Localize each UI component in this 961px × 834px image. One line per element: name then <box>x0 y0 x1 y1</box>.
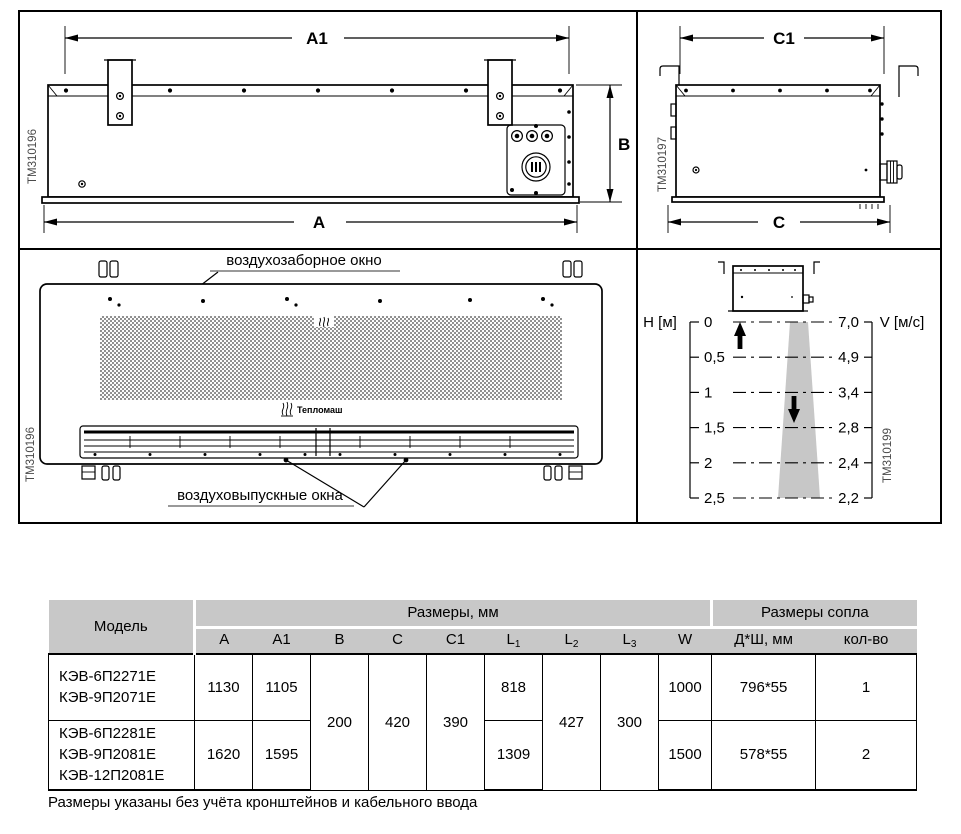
drawings-panel: A1 <box>18 10 942 524</box>
col-header-l1: L1 <box>485 627 543 654</box>
model-cell: КЭВ-6П2281Е КЭВ-9П2081Е КЭВ-12П2081Е <box>49 720 195 790</box>
model-name: КЭВ-9П2081Е <box>59 744 194 765</box>
dim-b-label: B <box>618 135 630 154</box>
table-row: КЭВ-6П2271Е КЭВ-9П2071Е 1130 1105 200 42… <box>49 654 917 720</box>
bottom-plate <box>672 197 884 202</box>
dim-a1-label: A1 <box>306 29 328 48</box>
footnote: Размеры указаны без учёта кронштейнов и … <box>48 794 477 811</box>
intake-mesh <box>100 316 562 400</box>
model-cell: КЭВ-6П2271Е КЭВ-9П2071Е <box>49 654 195 720</box>
dimensions-table: Модель Размеры, мм Размеры сопла A A1 B … <box>48 600 917 791</box>
h-tick-5: 2,5 <box>704 490 725 507</box>
cell-l1: 818 <box>485 654 543 720</box>
bottom-plate <box>42 197 579 203</box>
col-header-nozzle-count: кол-во <box>816 627 917 654</box>
h-tick-2: 1 <box>704 384 712 401</box>
cell-c-merged: 420 <box>369 654 427 790</box>
col-header-a1: A1 <box>253 627 311 654</box>
connector-icon <box>522 153 550 181</box>
cable-gland-icon <box>880 161 902 183</box>
col-header-a: A <box>195 627 253 654</box>
up-arrow-icon <box>734 322 746 349</box>
hanger-hooks-top-right <box>563 261 582 277</box>
cell-w: 1500 <box>659 720 712 790</box>
hanger-bottom-left <box>82 466 120 480</box>
h-tick-4: 2 <box>704 455 712 472</box>
cell-b-merged: 200 <box>311 654 369 790</box>
cell-nozzle-size: 578*55 <box>712 720 816 790</box>
group-header-nozzle: Размеры сопла <box>712 600 917 627</box>
cell-w: 1000 <box>659 654 712 720</box>
outlet-label: воздуховыпускные окна <box>177 487 343 504</box>
hanger-bottom-right <box>544 466 582 480</box>
cell-c1-merged: 390 <box>427 654 485 790</box>
cell-a1: 1595 <box>253 720 311 790</box>
model-name: КЭВ-9П2071Е <box>59 687 194 708</box>
cell-nozzle-size: 796*55 <box>712 654 816 720</box>
mounting-bracket-left <box>104 60 136 125</box>
airflow-chart: H [м] 0 0,5 1 1,5 2 2,5 V [м/с] 7,0 4,9 <box>638 250 940 522</box>
intake-label: воздухозаборное окно <box>226 252 381 269</box>
col-header-l2: L2 <box>543 627 601 654</box>
cell-l2-merged: 427 <box>543 654 601 790</box>
cell-a: 1130 <box>195 654 253 720</box>
side-view-cell: C1 <box>638 12 940 250</box>
dimension-b: B <box>576 85 630 202</box>
dimension-a: A <box>44 205 577 233</box>
v-tick-2: 3,4 <box>838 384 859 401</box>
dimension-c: C <box>668 205 890 233</box>
dim-c-label: C <box>773 213 785 232</box>
airflow-chart-cell: H [м] 0 0,5 1 1,5 2 2,5 V [м/с] 7,0 4,9 <box>638 250 940 522</box>
vent-mark-icon <box>314 316 334 327</box>
vent-ticks <box>860 204 878 209</box>
h-tick-3: 1,5 <box>704 420 725 437</box>
h-tick-1: 0,5 <box>704 349 725 366</box>
v-tick-1: 4,9 <box>838 349 859 366</box>
figure-id-front: TM310196 <box>25 427 37 482</box>
figure-id-side: TM310197 <box>657 137 669 192</box>
cell-a: 1620 <box>195 720 253 790</box>
cell-l3-merged: 300 <box>601 654 659 790</box>
model-name: КЭВ-6П2281Е <box>59 723 194 744</box>
cell-a1: 1105 <box>253 654 311 720</box>
cell-l1: 1309 <box>485 720 543 790</box>
v-tick-5: 2,2 <box>838 490 859 507</box>
col-header-b: B <box>311 627 369 654</box>
dimension-c1: C1 <box>680 26 884 74</box>
v-tick-3: 2,8 <box>838 420 859 437</box>
side-view-drawing: C1 <box>638 12 940 248</box>
h-tick-0: 0 <box>704 314 712 331</box>
dim-c1-label: C1 <box>773 29 795 48</box>
rear-view-cell: A1 <box>20 12 638 250</box>
col-header-c1: C1 <box>427 627 485 654</box>
ceiling-bracket-right <box>899 66 918 97</box>
datasheet-page: A1 <box>0 0 961 834</box>
figure-id-flow: TM310199 <box>882 428 894 483</box>
unit-pictogram <box>718 262 820 311</box>
rear-view-drawing: A1 <box>20 12 636 248</box>
figure-id-rear: TM310196 <box>27 129 39 184</box>
v-tick-4: 2,4 <box>838 455 859 472</box>
dim-a-label: A <box>313 213 325 232</box>
brand-label: Тепломаш <box>297 405 343 415</box>
col-header-w: W <box>659 627 712 654</box>
hanger-hooks-top-left <box>99 261 118 277</box>
v-axis-label: V [м/с] <box>880 314 925 331</box>
front-view-drawing: воздухозаборное окно <box>20 250 636 522</box>
group-header-dimensions: Размеры, мм <box>195 600 712 627</box>
unit-body-side <box>671 85 884 209</box>
col-header-c: C <box>369 627 427 654</box>
h-axis-label: H [м] <box>643 314 677 331</box>
mounting-bracket-right <box>484 60 516 125</box>
cell-nozzle-count: 2 <box>816 720 917 790</box>
col-header-nozzle-size: Д*Ш, мм <box>712 627 816 654</box>
col-header-l3: L3 <box>601 627 659 654</box>
cell-nozzle-count: 1 <box>816 654 917 720</box>
outlet-callout: воздуховыпускные окна <box>168 458 408 507</box>
h-axis: H [м] 0 0,5 1 1,5 2 2,5 <box>643 314 725 507</box>
model-name: КЭВ-12П2081Е <box>59 765 194 786</box>
v-tick-0: 7,0 <box>838 314 859 331</box>
model-name: КЭВ-6П2271Е <box>59 666 194 687</box>
front-view-cell: воздухозаборное окно <box>20 250 638 522</box>
col-header-model: Модель <box>49 600 195 654</box>
